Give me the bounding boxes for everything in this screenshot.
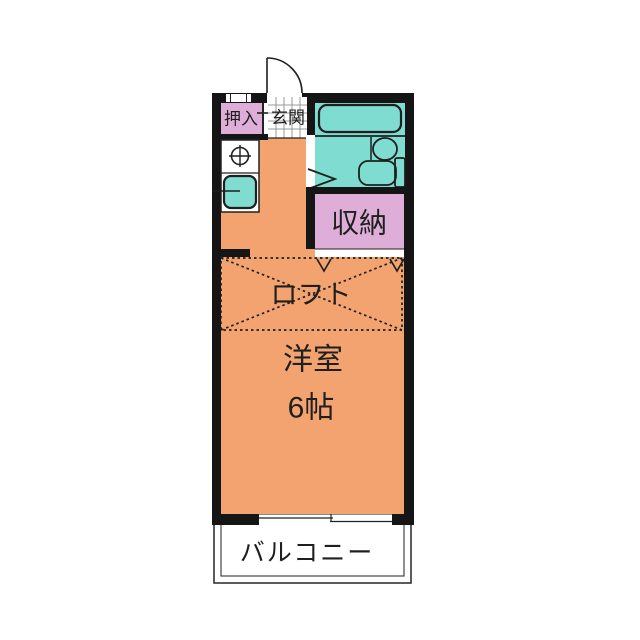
- storage-label: 収納: [331, 208, 387, 239]
- bathroom-left-wall: [307, 103, 315, 135]
- bathroom-door-gap: [306, 135, 315, 188]
- kitchen-sink-icon: [224, 176, 256, 208]
- room-label: 洋室: [283, 344, 343, 377]
- window-icon: [226, 94, 251, 102]
- window-gap: [259, 515, 392, 526]
- oshiire-label: 押入: [224, 110, 258, 129]
- oshiire-bottom-wall: [221, 134, 268, 140]
- bathroom-floor: [315, 103, 405, 187]
- entrance-door-icon: [267, 58, 302, 93]
- genkan-entry: 玄関: [268, 97, 307, 138]
- sliding-window-icon: [259, 515, 392, 526]
- oshiire-door-jamb: [262, 103, 264, 136]
- wall-stub: [221, 249, 250, 257]
- bathroom: [306, 103, 405, 194]
- floorplan-page: バルコニー 押入 玄関: [0, 0, 640, 640]
- storage-closet: 収納: [306, 194, 404, 257]
- balcony: バルコニー: [214, 520, 411, 583]
- storage-sliding-door: [315, 249, 404, 257]
- balcony-label: バルコニー: [240, 539, 375, 567]
- bathroom-bottom-wall: [306, 187, 405, 194]
- top-window-gap: [226, 94, 251, 102]
- oshiire-closet: 押入: [221, 103, 268, 140]
- storage-left-wall: [306, 194, 315, 249]
- oshiire-door-gap: [264, 103, 268, 136]
- loft-label: ロフト: [271, 280, 352, 310]
- door-swing-arc: [267, 58, 302, 93]
- genkan-label: 玄関: [271, 109, 305, 128]
- floorplan-canvas: バルコニー 押入 玄関: [0, 0, 640, 640]
- room-size-label: 6帖: [288, 392, 335, 425]
